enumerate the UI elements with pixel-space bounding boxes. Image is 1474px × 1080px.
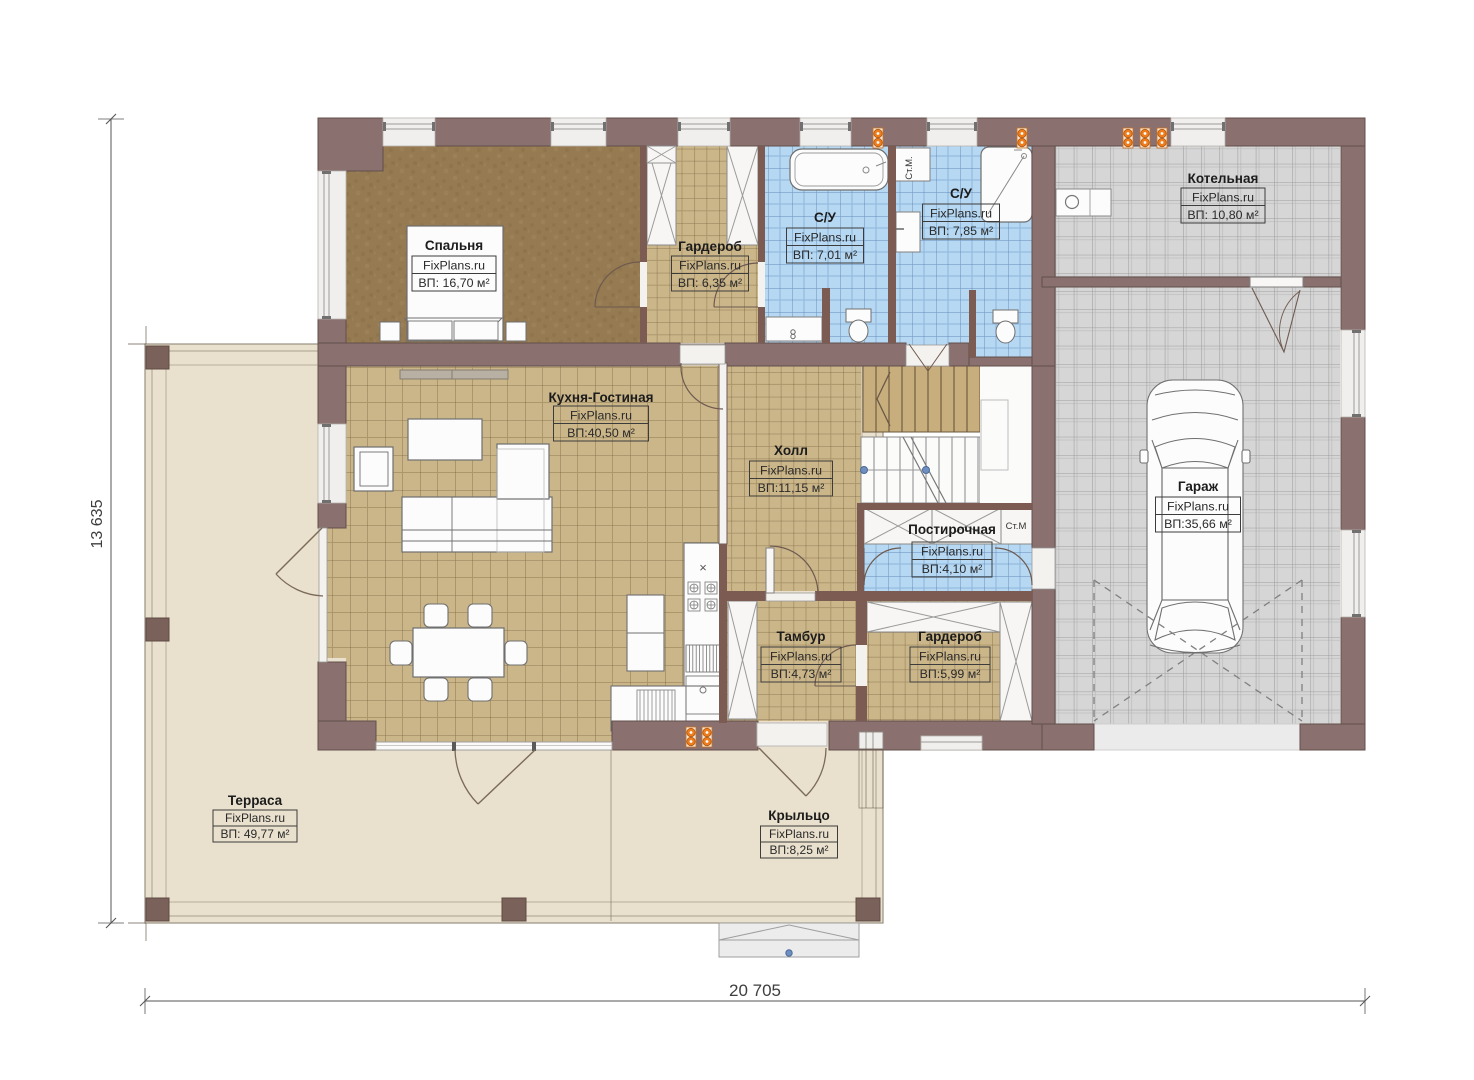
svg-text:ВП:5,99 м²: ВП:5,99 м²	[920, 667, 981, 681]
svg-text:Ст.М.: Ст.М.	[904, 156, 915, 179]
svg-text:ВП: 6,35 м²: ВП: 6,35 м²	[678, 276, 742, 290]
svg-text:Гараж: Гараж	[1178, 479, 1219, 494]
svg-text:FixPlans.ru: FixPlans.ru	[770, 650, 832, 664]
svg-text:Терраса: Терраса	[228, 793, 283, 808]
svg-text:Котельная: Котельная	[1188, 171, 1259, 186]
svg-text:С/У: С/У	[950, 186, 973, 201]
svg-text:FixPlans.ru: FixPlans.ru	[570, 409, 632, 423]
svg-text:FixPlans.ru: FixPlans.ru	[225, 811, 285, 825]
svg-text:Гардероб: Гардероб	[918, 629, 982, 644]
svg-text:FixPlans.ru: FixPlans.ru	[1192, 191, 1254, 205]
svg-text:FixPlans.ru: FixPlans.ru	[423, 259, 485, 273]
svg-text:Крыльцо: Крыльцо	[768, 808, 829, 823]
svg-text:ВП: 16,70 м²: ВП: 16,70 м²	[418, 276, 489, 290]
svg-text:ВП: 10,80 м²: ВП: 10,80 м²	[1187, 208, 1258, 222]
svg-text:ВП: 7,85 м²: ВП: 7,85 м²	[929, 224, 993, 238]
svg-text:FixPlans.ru: FixPlans.ru	[679, 259, 741, 273]
svg-text:FixPlans.ru: FixPlans.ru	[921, 545, 983, 559]
svg-text:С/У: С/У	[814, 210, 837, 225]
svg-text:FixPlans.ru: FixPlans.ru	[919, 650, 981, 664]
svg-text:×: ×	[699, 560, 707, 575]
svg-text:13 635: 13 635	[89, 499, 106, 548]
svg-text:FixPlans.ru: FixPlans.ru	[930, 207, 992, 221]
svg-text:ВП:35,66 м²: ВП:35,66 м²	[1164, 517, 1232, 531]
svg-text:Спальня: Спальня	[425, 238, 483, 253]
svg-text:Холл: Холл	[774, 443, 808, 458]
svg-text:ВП: 49,77 м²: ВП: 49,77 м²	[221, 827, 290, 841]
svg-text:ВП:4,10 м²: ВП:4,10 м²	[922, 562, 983, 576]
svg-text:FixPlans.ru: FixPlans.ru	[769, 827, 829, 841]
svg-text:FixPlans.ru: FixPlans.ru	[794, 231, 856, 245]
svg-text:Постирочная: Постирочная	[908, 522, 996, 537]
svg-text:ВП:11,15 м²: ВП:11,15 м²	[758, 481, 825, 495]
svg-text:Ст.М: Ст.М	[1006, 521, 1027, 532]
svg-text:ВП:4,73 м²: ВП:4,73 м²	[771, 667, 832, 681]
svg-text:Тамбур: Тамбур	[777, 629, 826, 644]
svg-text:ВП:40,50 м²: ВП:40,50 м²	[567, 426, 635, 440]
svg-text:FixPlans.ru: FixPlans.ru	[1167, 500, 1229, 514]
svg-text:20 705: 20 705	[729, 981, 781, 1000]
svg-text:Кухня-Гостиная: Кухня-Гостиная	[549, 390, 654, 405]
svg-text:FixPlans.ru: FixPlans.ru	[760, 464, 822, 478]
svg-text:ВП:8,25 м²: ВП:8,25 м²	[770, 843, 829, 857]
svg-text:Гардероб: Гардероб	[678, 239, 742, 254]
svg-text:ВП: 7,01 м²: ВП: 7,01 м²	[793, 248, 857, 262]
